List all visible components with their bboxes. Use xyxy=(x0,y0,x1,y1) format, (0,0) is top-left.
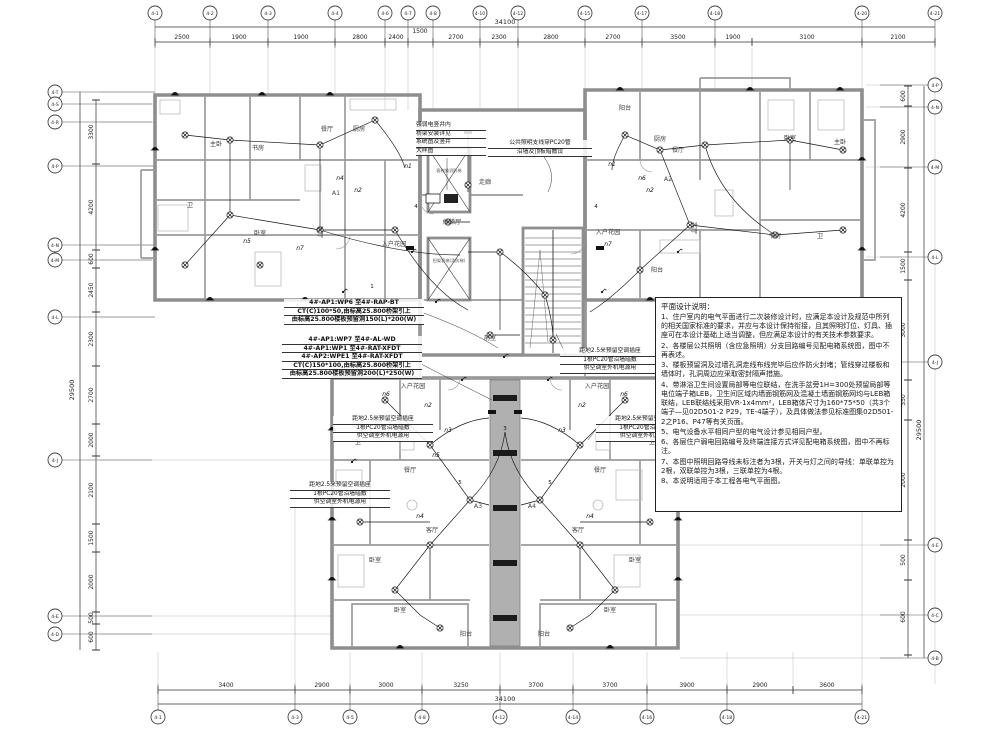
svg-text:3250: 3250 xyxy=(453,682,468,689)
svg-text:4-8: 4-8 xyxy=(418,715,426,721)
svg-text:4-12: 4-12 xyxy=(495,715,506,721)
svg-text:2400: 2400 xyxy=(388,34,403,41)
svg-text:3900: 3900 xyxy=(679,682,694,689)
svg-text:2900: 2900 xyxy=(752,682,767,689)
svg-text:4-J: 4-J xyxy=(52,458,58,464)
svg-text:n2: n2 xyxy=(578,402,586,409)
svg-text:5: 5 xyxy=(548,480,552,486)
svg-text:4-N: 4-N xyxy=(51,243,59,249)
svg-text:卧室: 卧室 xyxy=(604,606,616,614)
svg-text:4-C: 4-C xyxy=(931,613,939,619)
note-item: 8、本说明适用于本工程各电气平面图。 xyxy=(661,477,896,486)
cable-tray-callout-1: 4#-AP1:WP6 至4#-RAP-BT CT(C)100*50,由标高25.… xyxy=(284,299,424,325)
svg-text:前室: 前室 xyxy=(484,334,496,342)
svg-text:3000: 3000 xyxy=(378,682,393,689)
svg-text:卫: 卫 xyxy=(187,202,193,209)
svg-text:A3: A3 xyxy=(474,503,482,510)
tray1-line3: 由标高25.800楼板预留洞150(L)*200(W) xyxy=(284,316,424,325)
svg-text:2000: 2000 xyxy=(88,432,95,447)
svg-text:4-1: 4-1 xyxy=(154,715,162,721)
tray2-line2: 4#-AP1:WP1 至4#-RAT-XFDT xyxy=(282,345,422,354)
svg-text:4-5: 4-5 xyxy=(346,715,354,721)
center-service-spine xyxy=(490,380,520,646)
svg-text:n1: n1 xyxy=(404,163,412,170)
svg-text:n2: n2 xyxy=(354,187,362,194)
svg-text:4-21: 4-21 xyxy=(857,715,868,721)
svg-text:4-S: 4-S xyxy=(51,102,59,108)
svg-text:客厅: 客厅 xyxy=(572,526,584,534)
svg-text:n3: n3 xyxy=(444,427,452,434)
svg-text:阳台: 阳台 xyxy=(460,630,472,638)
note-item: 1、住户室内的电气平面进行二次装修设计时，应满足本设计及规范中所列的相关国家标准… xyxy=(661,313,896,341)
svg-text:4-L: 4-L xyxy=(931,255,939,261)
notes-title: 平面设计说明： xyxy=(661,302,896,312)
svg-text:4-7: 4-7 xyxy=(404,11,412,17)
svg-text:A4: A4 xyxy=(528,503,536,510)
svg-text:4-10: 4-10 xyxy=(475,11,486,17)
tray2-line1: 4#-AP1:WP7 至4#-AL-WD xyxy=(282,336,422,345)
svg-text:34100: 34100 xyxy=(495,18,516,26)
svg-text:4-M: 4-M xyxy=(51,258,60,264)
svg-text:n7: n7 xyxy=(296,245,304,252)
svg-text:4-12: 4-12 xyxy=(513,11,524,17)
cable-tray-callout-2: 4#-AP1:WP7 至4#-AL-WD 4#-AP1:WP1 至4#-RAT-… xyxy=(282,336,422,379)
svg-text:1500: 1500 xyxy=(88,530,95,545)
svg-text:600: 600 xyxy=(900,90,907,102)
svg-text:卧室: 卧室 xyxy=(254,229,266,237)
svg-text:3500: 3500 xyxy=(670,34,685,41)
svg-text:4-D: 4-D xyxy=(51,632,60,638)
note-item: 7、本图中照明回路导线未标注者为3根，开关与灯之间的导线：单联单控为2根，双联单… xyxy=(661,458,896,476)
svg-text:n4: n4 xyxy=(336,175,344,182)
svg-text:客厅: 客厅 xyxy=(426,526,438,534)
svg-text:600: 600 xyxy=(900,611,907,623)
svg-text:厨房: 厨房 xyxy=(353,125,365,133)
svg-text:4-21: 4-21 xyxy=(930,11,941,17)
svg-text:2450: 2450 xyxy=(88,282,95,297)
svg-text:4200: 4200 xyxy=(900,202,907,217)
svg-text:餐厅: 餐厅 xyxy=(594,466,606,474)
svg-text:客厅: 客厅 xyxy=(316,226,324,238)
svg-text:2100: 2100 xyxy=(88,482,95,497)
svg-text:2800: 2800 xyxy=(543,34,558,41)
svg-text:走廊: 走廊 xyxy=(479,178,491,186)
svg-text:4-N: 4-N xyxy=(931,105,939,111)
svg-text:阳台: 阳台 xyxy=(651,266,663,274)
svg-text:4-18: 4-18 xyxy=(710,11,721,17)
svg-text:n5: n5 xyxy=(243,238,251,245)
svg-text:客梯兼消防梯: 客梯兼消防梯 xyxy=(436,167,461,174)
svg-text:3300: 3300 xyxy=(88,124,95,139)
svg-text:5: 5 xyxy=(458,480,462,486)
svg-text:4200: 4200 xyxy=(88,199,95,214)
svg-text:厨房: 厨房 xyxy=(654,135,666,143)
svg-text:4-8: 4-8 xyxy=(429,11,437,17)
svg-text:4: 4 xyxy=(594,204,598,210)
svg-text:3600: 3600 xyxy=(819,682,834,689)
note-item: 3、楼板预留洞及过墙孔洞走线布线完毕后应作防火封堵；管线穿过楼板和墙体时，孔洞周… xyxy=(661,361,896,379)
svg-text:3700: 3700 xyxy=(528,682,543,689)
svg-text:餐厅: 餐厅 xyxy=(321,125,333,133)
svg-text:4-4: 4-4 xyxy=(331,11,339,17)
svg-text:2700: 2700 xyxy=(448,34,463,41)
riser-callout: 强弱电竖井内桥架安装详见系统图及竖井大样图 xyxy=(416,122,486,156)
note-item: 2、各楼层公共照明（含应急照明）分支回路编号见配电箱系统图，图中不再表述。 xyxy=(661,342,896,360)
svg-text:候梯厅: 候梯厅 xyxy=(443,218,462,226)
svg-text:3100: 3100 xyxy=(799,34,814,41)
svg-text:入户花园: 入户花园 xyxy=(382,240,407,248)
tray2-line5: 由标高25.800楼板预留洞200(L)*250(W) xyxy=(282,370,422,379)
svg-text:4-E: 4-E xyxy=(51,614,59,620)
svg-text:入户花园: 入户花园 xyxy=(596,228,621,236)
svg-text:4-L: 4-L xyxy=(51,315,59,321)
tray2-line3: 4#-AP2:WPE1 至4#-RAT-XFDT xyxy=(282,353,422,362)
svg-text:3700: 3700 xyxy=(602,682,617,689)
svg-text:4-6: 4-6 xyxy=(381,11,389,17)
svg-text:2900: 2900 xyxy=(900,129,907,144)
svg-text:4-P: 4-P xyxy=(51,164,59,170)
tray1-line1: 4#-AP1:WP6 至4#-RAP-BT xyxy=(284,299,424,308)
svg-text:2300: 2300 xyxy=(88,331,95,346)
svg-text:卫: 卫 xyxy=(817,233,823,240)
svg-text:A2: A2 xyxy=(664,176,672,183)
strong-current-shaft xyxy=(426,194,440,203)
svg-text:2700: 2700 xyxy=(605,34,620,41)
svg-text:4-3: 4-3 xyxy=(291,715,299,721)
svg-text:4-R: 4-R xyxy=(51,120,60,126)
svg-text:1500: 1500 xyxy=(412,28,427,35)
svg-text:书房: 书房 xyxy=(769,232,781,240)
svg-text:卧室: 卧室 xyxy=(629,556,641,564)
ac-socket-callout-1: 距地2.5米预留空调插座1根PC20管沿墙暗敷供空调室外机电源用 xyxy=(333,416,433,442)
svg-text:4-E: 4-E xyxy=(931,543,939,549)
svg-text:2800: 2800 xyxy=(352,34,367,41)
svg-text:3400: 3400 xyxy=(218,682,233,689)
svg-text:餐厅: 餐厅 xyxy=(672,146,684,154)
svg-text:n6: n6 xyxy=(620,391,628,398)
svg-text:1: 1 xyxy=(370,284,374,290)
svg-text:2900: 2900 xyxy=(314,682,329,689)
svg-text:n6: n6 xyxy=(638,175,646,182)
svg-text:n4: n4 xyxy=(416,513,424,520)
svg-text:客厅: 客厅 xyxy=(690,222,698,234)
svg-text:2700: 2700 xyxy=(88,387,95,402)
svg-text:4-B: 4-B xyxy=(931,656,939,662)
svg-text:1500: 1500 xyxy=(900,258,907,273)
svg-text:n5: n5 xyxy=(432,452,440,459)
svg-text:卧室: 卧室 xyxy=(394,606,406,614)
svg-text:2300: 2300 xyxy=(491,34,506,41)
svg-text:A1: A1 xyxy=(332,190,340,197)
svg-text:4-15: 4-15 xyxy=(580,11,591,17)
svg-text:2100: 2100 xyxy=(890,34,905,41)
svg-text:1900: 1900 xyxy=(293,34,308,41)
svg-text:n7: n7 xyxy=(604,241,612,248)
svg-text:500: 500 xyxy=(88,612,95,624)
svg-text:主卧: 主卧 xyxy=(210,140,222,148)
svg-text:阳台: 阳台 xyxy=(619,104,631,112)
svg-text:n1: n1 xyxy=(608,161,616,168)
weak-current-shaft xyxy=(444,194,458,203)
svg-text:4: 4 xyxy=(414,204,418,210)
svg-text:4-T: 4-T xyxy=(52,90,59,96)
svg-text:入户花园: 入户花园 xyxy=(585,382,610,390)
svg-text:4-14: 4-14 xyxy=(568,715,579,721)
svg-text:n2: n2 xyxy=(646,187,654,194)
lighting-callout: 公共照明支线穿PC20管沿墙及顶板暗敷设 xyxy=(488,140,592,157)
svg-text:600: 600 xyxy=(88,253,95,265)
svg-text:书房: 书房 xyxy=(252,144,264,152)
svg-text:4-1: 4-1 xyxy=(151,11,159,17)
svg-text:4-M: 4-M xyxy=(931,165,940,171)
svg-text:n2: n2 xyxy=(424,402,432,409)
svg-text:29500: 29500 xyxy=(915,420,923,441)
svg-text:500: 500 xyxy=(900,554,907,566)
svg-text:2500: 2500 xyxy=(174,34,189,41)
tray1-line2: CT(C)100*50,由标高25.800桥架引上 xyxy=(284,308,424,317)
svg-text:2000: 2000 xyxy=(88,574,95,589)
svg-text:34100: 34100 xyxy=(495,695,516,703)
svg-text:3: 3 xyxy=(503,426,507,432)
svg-text:4-P: 4-P xyxy=(931,83,939,89)
svg-text:卧室: 卧室 xyxy=(784,134,796,142)
svg-text:4-J: 4-J xyxy=(932,360,938,366)
svg-text:4-3: 4-3 xyxy=(264,11,272,17)
ac-socket-callout-4: 距地2.5米预留空调插座1根PC20管沿墙暗敷供空调室外机电源用 xyxy=(560,348,660,374)
svg-text:餐厅: 餐厅 xyxy=(404,466,416,474)
ac-socket-callout-3: 距地2.5米预留空调插座1根PC20管沿墙暗敷供空调室外机电源用 xyxy=(290,482,390,508)
drawing-sheet: 主卧 书房 餐厅 厨房 卫 卧室 入户花园 A1 客厅 阳台 厨房 餐厅 A2 … xyxy=(0,0,1000,750)
svg-text:阳台: 阳台 xyxy=(538,630,550,638)
svg-text:n3: n3 xyxy=(558,427,566,434)
note-item: 5、电气设备水平相同户型的电气设计参见相同户型。 xyxy=(661,428,896,437)
note-item: 6、各层住户弱电回路编号及终端连接方式详见配电箱系统图，图中不再标注。 xyxy=(661,438,896,456)
svg-text:4-17: 4-17 xyxy=(637,11,648,17)
svg-text:4-20: 4-20 xyxy=(857,11,868,17)
note-item: 4、带淋浴卫生间设置局部等电位联结，在洗手盆旁1H=300处预留局部等电位端子箱… xyxy=(661,381,896,427)
svg-text:卧室: 卧室 xyxy=(369,556,381,564)
svg-text:4-18: 4-18 xyxy=(722,715,733,721)
svg-text:n6: n6 xyxy=(382,391,390,398)
design-notes-panel: 平面设计说明： 1、住户室内的电气平面进行二次装修设计时，应满足本设计及规范中所… xyxy=(655,297,902,512)
svg-text:主卧: 主卧 xyxy=(834,138,846,146)
svg-text:1900: 1900 xyxy=(725,34,740,41)
svg-text:担架客梯(消防梯): 担架客梯(消防梯) xyxy=(433,257,466,264)
svg-text:29500: 29500 xyxy=(68,380,76,401)
svg-text:600: 600 xyxy=(88,631,95,643)
svg-text:4-2: 4-2 xyxy=(206,11,214,17)
svg-text:1900: 1900 xyxy=(231,34,246,41)
svg-text:4-16: 4-16 xyxy=(642,715,653,721)
svg-text:n4: n4 xyxy=(586,513,594,520)
svg-text:入户花园: 入户花园 xyxy=(401,382,426,390)
